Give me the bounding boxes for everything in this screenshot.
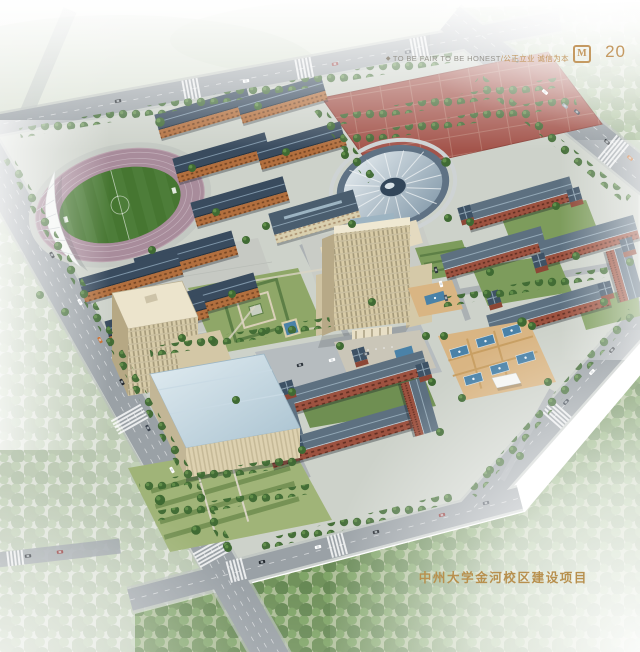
slogan-english: TO BE FAIR TO BE HONEST bbox=[393, 54, 501, 63]
page-number: 20 bbox=[605, 42, 626, 62]
campus-rendering-page: ◆TO BE FAIR TO BE HONEST/公正立业 诚信为本 M 20 … bbox=[0, 0, 640, 652]
fog-overlay bbox=[0, 0, 640, 652]
slogan-chinese: 公正立业 诚信为本 bbox=[503, 54, 569, 63]
header-slogan: ◆TO BE FAIR TO BE HONEST/公正立业 诚信为本 bbox=[386, 53, 569, 64]
slogan-bullet-icon: ◆ bbox=[386, 56, 391, 62]
company-logo-icon: M bbox=[573, 45, 591, 63]
aerial-scene bbox=[0, 0, 640, 652]
project-title: 中州大学金河校区建设项目 bbox=[419, 567, 588, 586]
